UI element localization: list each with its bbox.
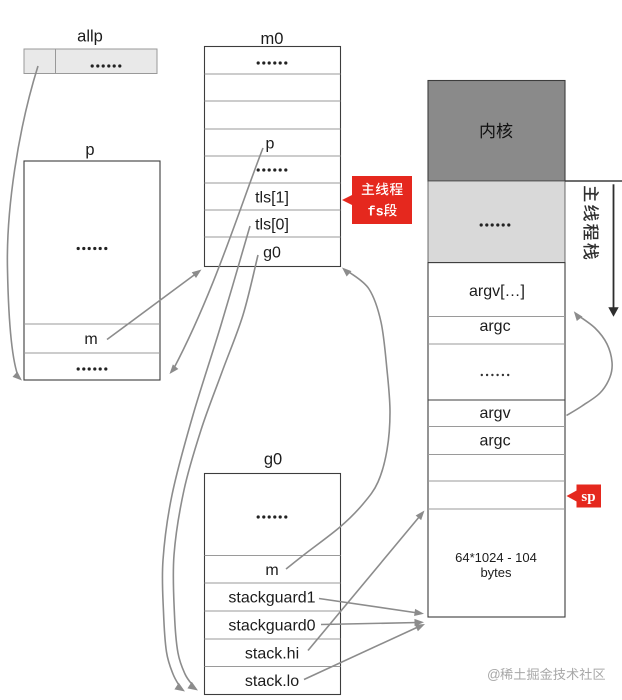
svg-text:stack.hi: stack.hi	[245, 646, 299, 663]
svg-text:argc: argc	[479, 433, 510, 450]
svg-text:64*1024 - 104: 64*1024 - 104	[455, 550, 537, 565]
svg-text:tls[0]: tls[0]	[255, 217, 289, 234]
svg-text:g0: g0	[263, 245, 281, 262]
svg-text:bytes: bytes	[480, 565, 512, 580]
svg-text:p: p	[85, 141, 94, 159]
svg-text:g0: g0	[264, 451, 282, 469]
svg-text:p: p	[266, 136, 275, 153]
svg-text:stackguard0: stackguard0	[228, 618, 315, 635]
svg-text:fs: fs	[368, 205, 384, 220]
svg-text:allp: allp	[77, 28, 103, 46]
svg-text:argv: argv	[479, 405, 510, 422]
svg-text:m: m	[265, 562, 278, 579]
svg-text:m0: m0	[261, 30, 284, 48]
svg-text:@: @	[487, 667, 501, 682]
svg-text:tls[1]: tls[1]	[255, 190, 289, 207]
svg-text:stack.lo: stack.lo	[245, 673, 299, 690]
svg-text:argc: argc	[479, 318, 510, 335]
svg-text:sp: sp	[581, 489, 595, 505]
svg-text:argv[…]: argv[…]	[469, 283, 525, 300]
svg-text:m: m	[84, 331, 97, 348]
svg-text:stackguard1: stackguard1	[228, 590, 315, 607]
